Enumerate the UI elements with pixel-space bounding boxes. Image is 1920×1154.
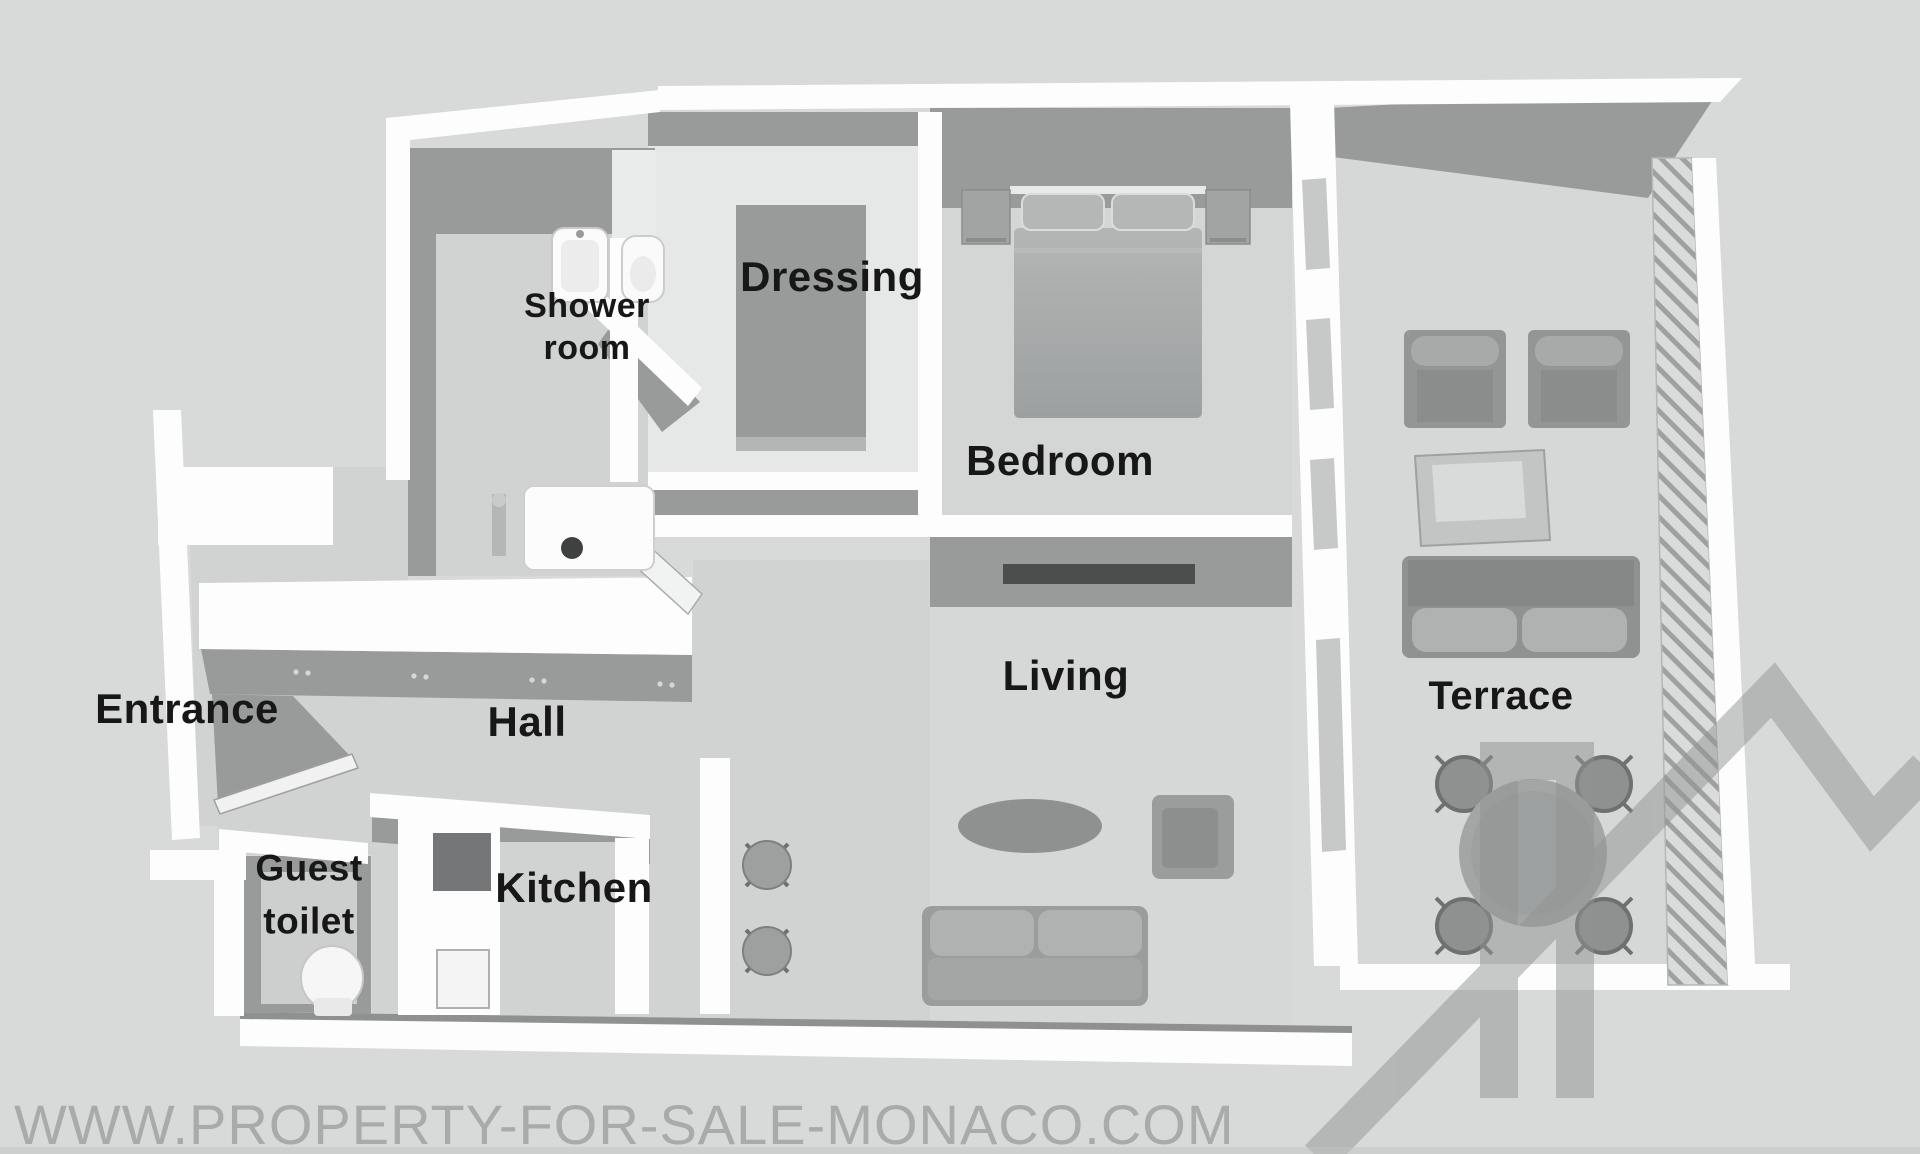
bed-pillow: [1112, 194, 1194, 230]
dressing-south-wall: [648, 472, 930, 490]
nightstand-right: [1206, 190, 1250, 244]
bedroom-south-wall: [648, 515, 1292, 537]
kitchen-bar-divider: [700, 758, 730, 1014]
window-pane: [1306, 318, 1334, 410]
floor-plan-image: Entrance Hall Guest toilet Kitchen Showe…: [0, 0, 1920, 1154]
room-label-living: Living: [1003, 650, 1130, 702]
dressing-south-wall-face: [648, 490, 930, 518]
hall-closet-top: [199, 577, 692, 655]
cooktop: [433, 833, 491, 891]
tv-console: [1003, 564, 1195, 584]
entrance-closet: [158, 467, 333, 545]
closet-hinge-dot: [541, 678, 546, 683]
room-label-kitchen: Kitchen: [495, 862, 653, 914]
closet-hinge-dot: [411, 673, 416, 678]
room-label-guest-toilet: Guest toilet: [219, 842, 399, 947]
bed-duvet: [1014, 228, 1202, 418]
closet-hinge-dot: [529, 677, 534, 682]
closet-hinge-dot: [293, 669, 298, 674]
room-label-bedroom: Bedroom: [966, 435, 1154, 487]
floor-plan-drawing: [0, 0, 1920, 1154]
closet-hinge-dot: [657, 681, 662, 686]
nightstand-left: [962, 190, 1010, 244]
living-armchair: [1152, 795, 1234, 879]
shower-doorway: [612, 150, 656, 238]
bed-headboard: [1010, 186, 1206, 194]
room-label-hall: Hall: [487, 696, 566, 748]
window-pane: [1302, 178, 1330, 270]
room-label-dressing: Dressing: [740, 251, 924, 303]
window-pane: [1310, 458, 1338, 550]
shower-drain: [561, 537, 583, 559]
bed-pillow: [1022, 194, 1104, 230]
living-rug: [958, 799, 1102, 853]
closet-hinge-dot: [669, 682, 674, 687]
bar-stool: [743, 841, 791, 889]
watermark-site-url: WWW.PROPERTY-FOR-SALE-MONACO.COM: [14, 1092, 1235, 1154]
room-label-shower-room: Shower room: [502, 285, 672, 369]
terrace-armchair: [1528, 330, 1630, 428]
dressing-wardrobe-edge: [736, 437, 866, 451]
oven-front: [437, 950, 489, 1008]
dressing-wardrobe: [736, 205, 866, 437]
closet-hinge-dot: [423, 674, 428, 679]
closet-hinge-dot: [305, 670, 310, 675]
terrace-sofa: [1402, 556, 1640, 658]
bar-stool: [743, 927, 791, 975]
dressing-bedroom-divider-wall: [918, 112, 942, 518]
room-label-terrace: Terrace: [1428, 672, 1573, 722]
shower-west-wall-face: [408, 234, 436, 576]
terrace-armchair: [1404, 330, 1506, 428]
sink-faucet: [576, 230, 584, 238]
room-label-entrance: Entrance: [95, 683, 279, 735]
living-sofa: [922, 906, 1148, 1006]
terrace-coffee-table: [1415, 450, 1550, 546]
dressing-north-wall-face: [648, 112, 930, 146]
shower-west-outer-wall: [386, 118, 410, 480]
